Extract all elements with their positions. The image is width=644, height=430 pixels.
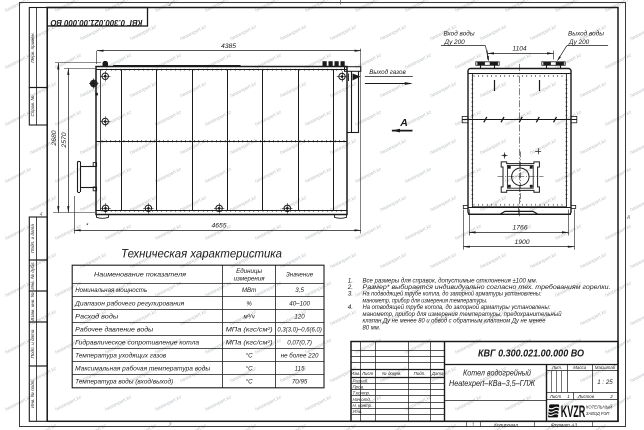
svg-text:Справ. №: Справ. № [30, 96, 35, 117]
svg-text:Ду 200: Ду 200 [444, 39, 466, 46]
svg-text:2: 2 [168, 423, 172, 429]
svg-text:1104: 1104 [512, 46, 527, 53]
svg-text:Подп. и дата: Подп. и дата [30, 224, 35, 253]
svg-text:120: 120 [294, 313, 305, 320]
svg-text:Изм.: Изм. [351, 371, 360, 376]
svg-text:Н. контр.: Н. контр. [353, 403, 373, 408]
svg-text:80 мм.: 80 мм. [363, 324, 381, 331]
svg-text:Наименование показателя: Наименование показателя [94, 272, 187, 279]
svg-text:Формат А3: Формат А3 [551, 422, 578, 428]
svg-text:2: 2 [168, 2, 172, 8]
svg-text:°С: °С [246, 365, 253, 372]
svg-text:1: 1 [472, 423, 475, 429]
svg-text:4385: 4385 [221, 43, 236, 50]
svg-text:3.: 3. [348, 291, 353, 298]
svg-text:1900: 1900 [514, 239, 529, 246]
svg-text:ЗАВОД РЭП: ЗАВОД РЭП [586, 411, 610, 416]
svg-text:Рабочее давление воды: Рабочее давление воды [75, 326, 153, 333]
svg-text:Утв.: Утв. [353, 409, 363, 414]
svg-text:А: А [399, 117, 408, 129]
svg-text:Подп.: Подп. [414, 371, 426, 376]
svg-text:°С: °С [246, 378, 253, 385]
svg-text:не более 220: не более 220 [281, 352, 319, 359]
svg-text:%: % [246, 300, 252, 307]
svg-text:Диапазон рабочего регулировани: Диапазон рабочего регулирования [74, 300, 185, 307]
svg-text:МПа (кгс/см²): МПа (кгс/см²) [226, 339, 273, 346]
svg-text:Перв. примен.: Перв. примен. [30, 32, 35, 63]
svg-text:Дата: Дата [431, 371, 444, 376]
svg-text:Heatexpert–КВа–3,5–ГЛЖ: Heatexpert–КВа–3,5–ГЛЖ [449, 379, 536, 388]
svg-text:1 : 25: 1 : 25 [597, 379, 613, 386]
svg-text:м³/ч: м³/ч [243, 313, 255, 320]
svg-text:измерения: измерения [234, 276, 266, 283]
svg-text:А: А [626, 215, 631, 221]
svg-text:Выход газов: Выход газов [369, 68, 406, 76]
svg-text:0,3(3,0)–0,6(6,0): 0,3(3,0)–0,6(6,0) [277, 326, 322, 333]
svg-text:Максимальная рабочая температу: Максимальная рабочая температура воды [75, 365, 210, 372]
svg-text:2570: 2570 [61, 132, 68, 148]
svg-text:Инв. № подл.: Инв. № подл. [30, 379, 35, 408]
svg-text:KVZR: KVZR [561, 403, 586, 421]
svg-text:Температура уходящих газов: Температура уходящих газов [75, 352, 167, 359]
svg-text:КВГ 0.300.021.00.000 ВО: КВГ 0.300.021.00.000 ВО [478, 348, 584, 359]
svg-text:Взам. инв. №: Взам. инв. № [30, 292, 35, 320]
svg-text:115: 115 [295, 365, 305, 372]
svg-text:40–100: 40–100 [289, 300, 310, 307]
svg-text:Т.контр.: Т.контр. [353, 391, 371, 396]
svg-text:Лит.: Лит. [551, 365, 562, 370]
svg-text:Выход воды: Выход воды [568, 30, 604, 38]
svg-text:МПа (кгс/см²): МПа (кгс/см²) [226, 326, 273, 333]
svg-text:Пров.: Пров. [353, 385, 365, 390]
svg-text:Номинальная мощность: Номинальная мощность [75, 287, 147, 294]
svg-text:Инв. № дубл.: Инв. № дубл. [30, 261, 35, 289]
svg-text:2: 2 [609, 394, 613, 399]
svg-text:3,5: 3,5 [295, 287, 304, 294]
svg-text:Вход воды: Вход воды [444, 30, 475, 38]
svg-text:КВГ 0.300.021.00.000 ВО: КВГ 0.300.021.00.000 ВО [50, 18, 143, 27]
svg-text:Нач.отд.: Нач.отд. [353, 397, 372, 402]
svg-text:1766: 1766 [512, 225, 527, 232]
svg-text:Масса: Масса [573, 365, 587, 370]
svg-text:Ду 200: Ду 200 [568, 39, 590, 46]
svg-text:Масштаб: Масштаб [595, 365, 616, 370]
svg-text:КОТЕЛЬНЫЙ: КОТЕЛЬНЫЙ [586, 403, 613, 410]
svg-text:Лист: Лист [549, 394, 562, 399]
svg-text:Единицы: Единицы [236, 268, 262, 275]
svg-text:Значение: Значение [286, 272, 314, 279]
svg-text:1: 1 [567, 394, 570, 399]
svg-text:№ докум.: № докум. [382, 371, 401, 376]
svg-text:Котел водогрейный: Котел водогрейный [463, 368, 532, 377]
svg-text:Техническая характеристика: Техническая характеристика [121, 247, 282, 261]
svg-text:70/95: 70/95 [292, 378, 308, 385]
svg-text:Копировал: Копировал [494, 422, 518, 428]
svg-text:Гидравлическое сопротивление к: Гидравлическое сопротивление котла [75, 339, 200, 346]
svg-text:0,07(0,7): 0,07(0,7) [287, 339, 312, 346]
svg-text:Разраб.: Разраб. [353, 379, 369, 384]
svg-text:Листов: Листов [577, 394, 595, 399]
svg-text:2680: 2680 [51, 130, 58, 146]
svg-text:Подп. и дата: Подп. и дата [30, 329, 35, 358]
svg-text:МВт: МВт [242, 287, 256, 294]
svg-text:клапан Ду не менее 80 и обвод: клапан Ду не менее 80 и обвод с обратным… [363, 317, 546, 325]
svg-text:Расход воды: Расход воды [75, 313, 119, 320]
svg-text:4655: 4655 [211, 223, 226, 230]
svg-text:Температура воды (вход/выход): Температура воды (вход/выход) [75, 378, 173, 385]
svg-text:°С: °С [246, 352, 253, 359]
svg-text:Лист: Лист [361, 371, 374, 376]
svg-text:4.: 4. [348, 304, 353, 311]
